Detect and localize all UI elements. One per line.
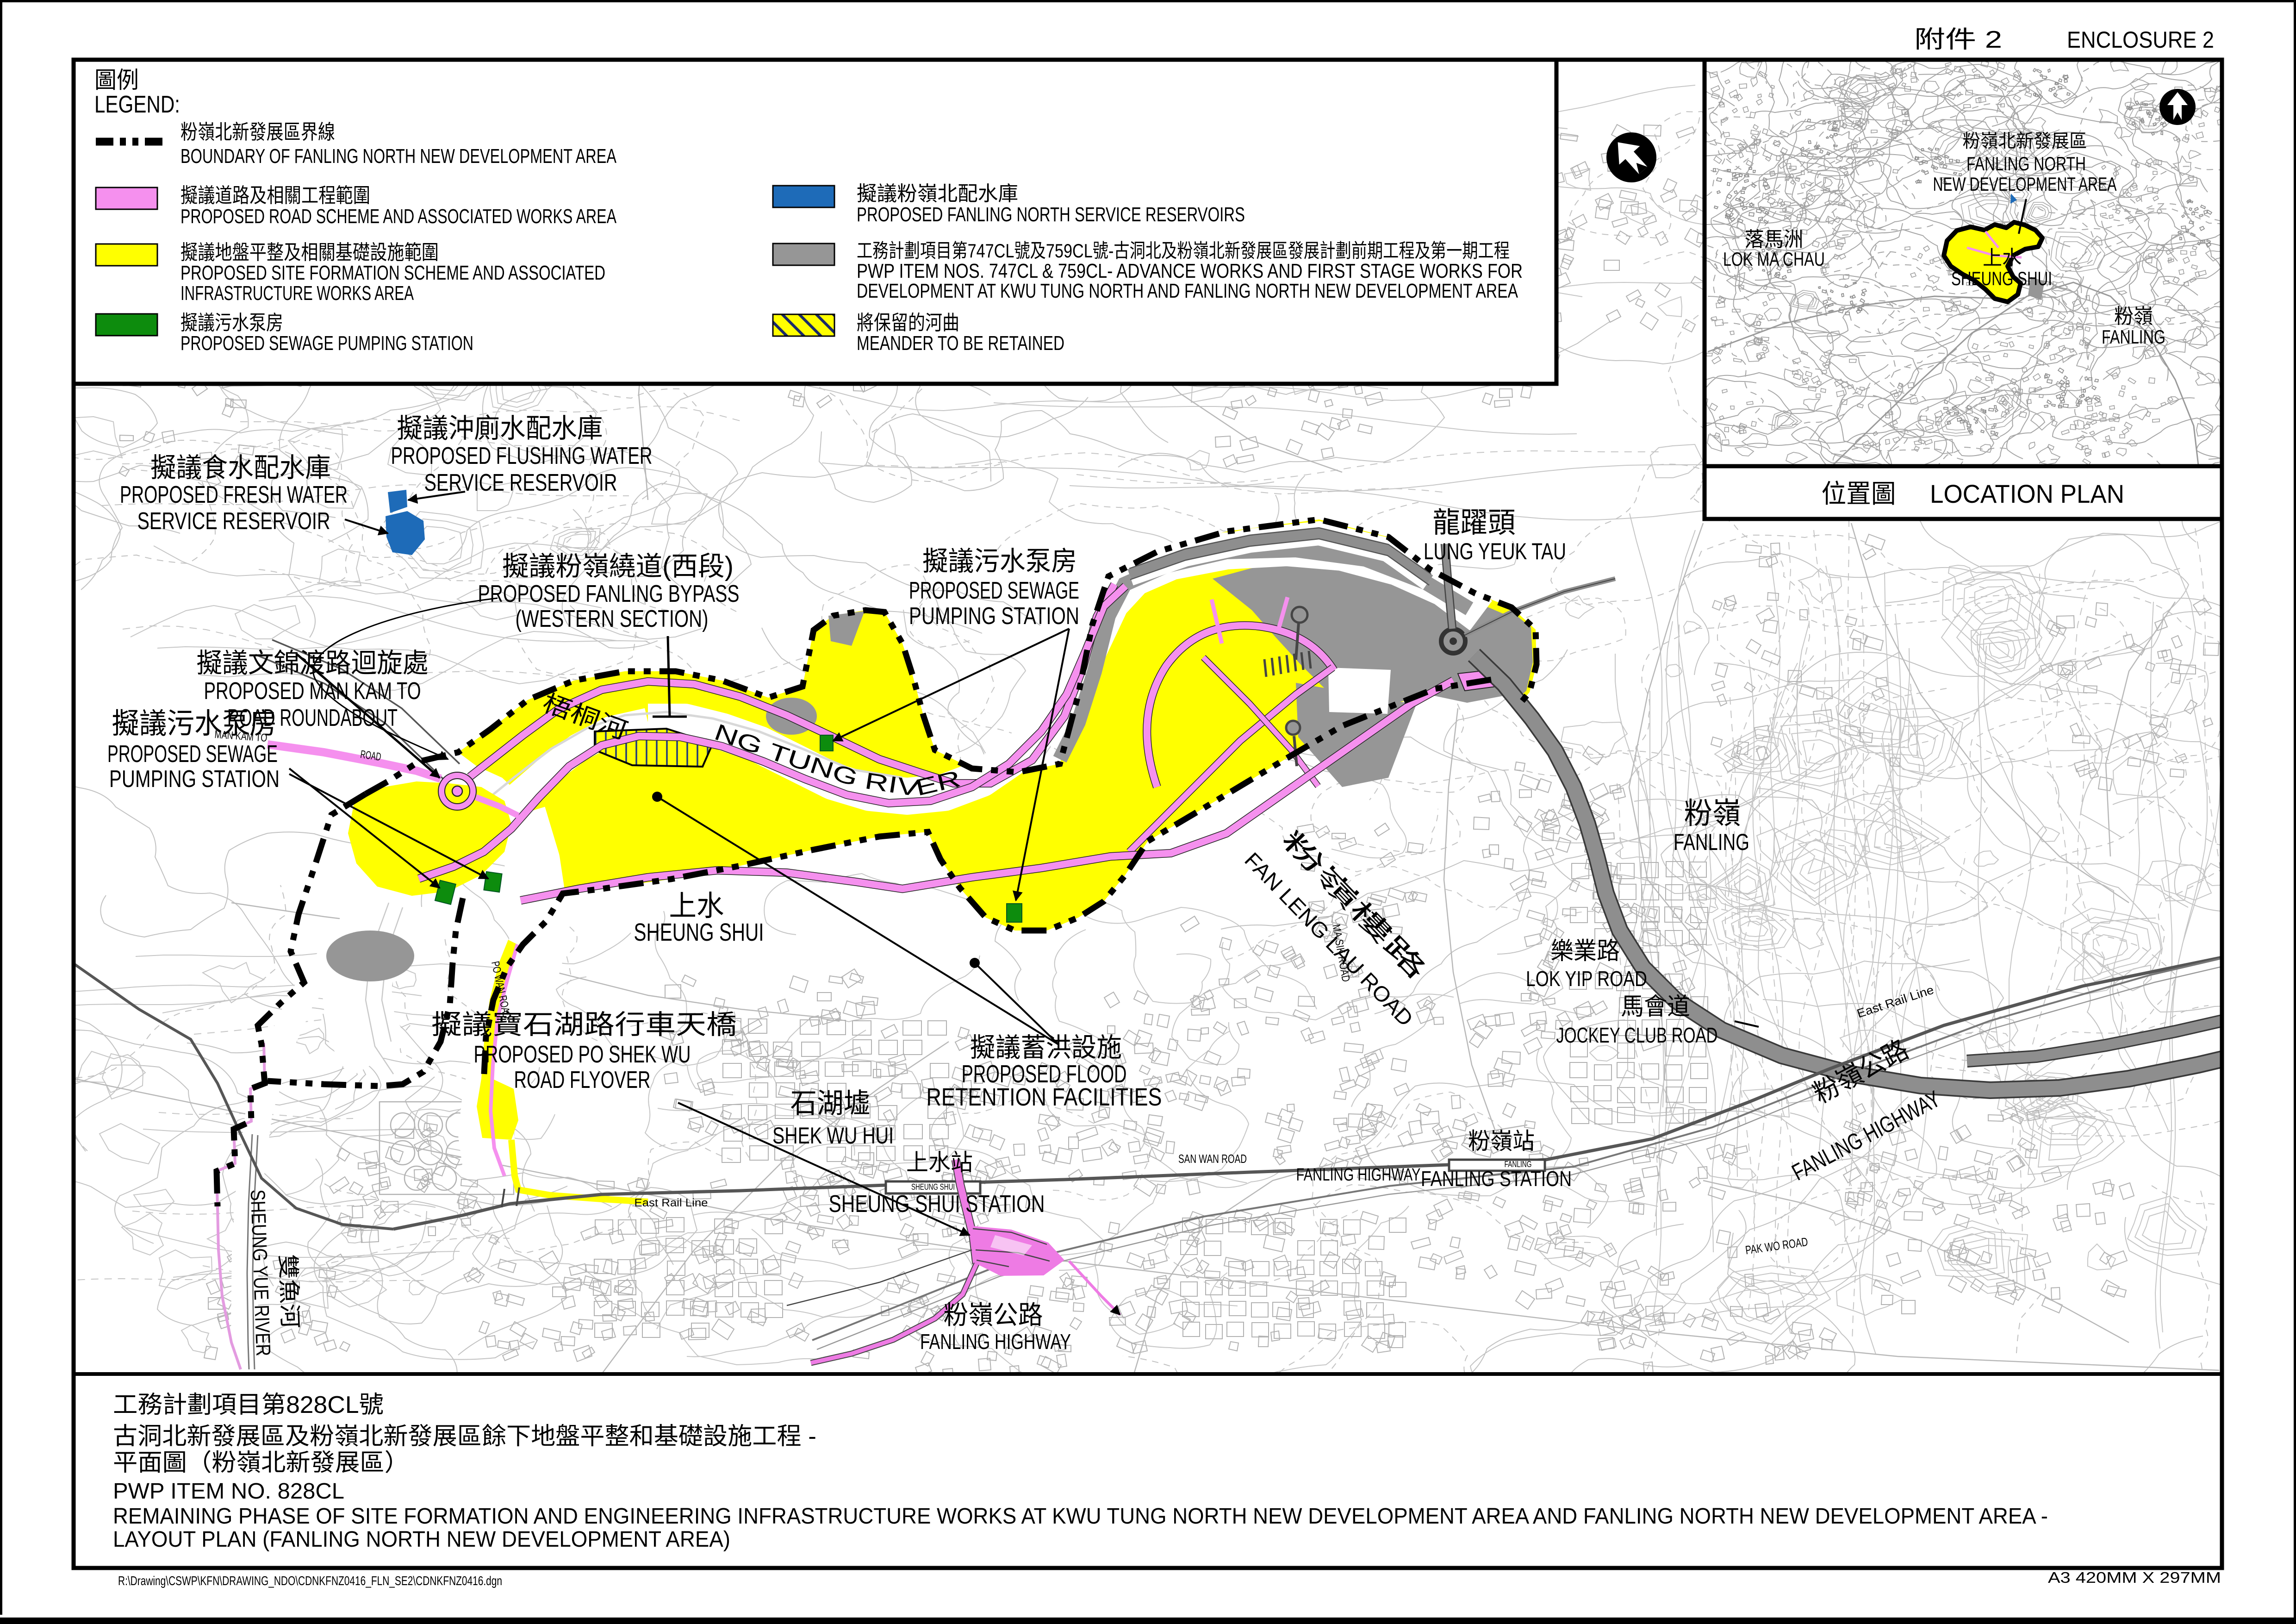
svg-text:上水: 上水 [1983, 247, 2022, 269]
svg-text:擬議粉嶺繞道(西段): 擬議粉嶺繞道(西段) [502, 551, 734, 581]
svg-text:擬議污水泵房: 擬議污水泵房 [180, 312, 283, 334]
svg-text:FANLING: FANLING [1505, 1160, 1532, 1169]
svg-text:FANLING NORTH: FANLING NORTH [1966, 153, 2086, 175]
svg-text:RETENTION FACILITIES: RETENTION FACILITIES [927, 1083, 1162, 1111]
svg-text:SHEUNG SHUI: SHEUNG SHUI [634, 918, 764, 946]
svg-text:擬議地盤平整及相關基礎設施範圍: 擬議地盤平整及相關基礎設施範圍 [180, 241, 439, 264]
svg-text:SERVICE RESERVOIR: SERVICE RESERVOIR [424, 469, 617, 496]
svg-text:將保留的河曲: 將保留的河曲 [857, 312, 959, 334]
svg-text:PUMPING STATION: PUMPING STATION [109, 766, 280, 793]
svg-text:(WESTERN SECTION): (WESTERN SECTION) [516, 606, 709, 632]
svg-text:PROPOSED MAN KAM TO: PROPOSED MAN KAM TO [204, 678, 421, 705]
svg-text:擬議沖廁水配水庫: 擬議沖廁水配水庫 [397, 413, 603, 443]
svg-text:PROPOSED FLUSHING WATER: PROPOSED FLUSHING WATER [391, 443, 653, 469]
svg-text:INFRASTRUCTURE WORKS AREA: INFRASTRUCTURE WORKS AREA [180, 282, 414, 305]
svg-text:SHEUNG SHUI: SHEUNG SHUI [911, 1182, 955, 1192]
svg-text:SHEUNG SHUI: SHEUNG SHUI [1951, 268, 2052, 289]
svg-text:PWP ITEM NOS. 747CL & 759CL- A: PWP ITEM NOS. 747CL & 759CL- ADVANCE WOR… [857, 260, 1523, 282]
svg-text:A3 420MM X 297MM: A3 420MM X 297MM [2048, 1569, 2221, 1586]
svg-text:擬議食水配水庫: 擬議食水配水庫 [150, 453, 331, 483]
svg-text:PUMPING STATION: PUMPING STATION [909, 603, 1079, 630]
svg-text:擬議粉嶺北配水庫: 擬議粉嶺北配水庫 [857, 182, 1018, 205]
svg-text:FANLING: FANLING [1674, 829, 1749, 855]
svg-text:SHEUNG SHUI STATION: SHEUNG SHUI STATION [829, 1191, 1045, 1218]
svg-text:ROAD FLYOVER: ROAD FLYOVER [514, 1067, 651, 1093]
svg-text:擬議蓄洪設施: 擬議蓄洪設施 [970, 1033, 1122, 1062]
svg-text:平面圖（粉嶺北新發展區）: 平面圖（粉嶺北新發展區） [113, 1449, 409, 1476]
svg-text:附件 2: 附件 2 [1914, 26, 2002, 53]
svg-text:擬議污水泵房: 擬議污水泵房 [922, 546, 1077, 576]
svg-text:龍躍頭: 龍躍頭 [1433, 507, 1516, 539]
svg-text:LEGEND:: LEGEND: [94, 91, 180, 118]
svg-text:R:\Drawing\CSWP\KFN\DRAWING_ND: R:\Drawing\CSWP\KFN\DRAWING_NDO\CDNKFNZ0… [118, 1574, 502, 1588]
svg-text:PROPOSED SEWAGE PUMPING STATIO: PROPOSED SEWAGE PUMPING STATION [180, 332, 473, 355]
svg-text:工務計劃項目第828CL號: 工務計劃項目第828CL號 [113, 1392, 384, 1418]
svg-text:LOK YIP ROAD: LOK YIP ROAD [1526, 967, 1647, 991]
svg-text:LOK MA CHAU: LOK MA CHAU [1723, 248, 1825, 270]
svg-text:ENCLOSURE 2: ENCLOSURE 2 [2067, 27, 2214, 53]
svg-text:PROPOSED SEWAGE: PROPOSED SEWAGE [107, 741, 278, 768]
svg-text:粉嶺北新發展區界線: 粉嶺北新發展區界線 [180, 121, 335, 144]
svg-text:上水站: 上水站 [906, 1149, 973, 1175]
svg-text:MEANDER TO BE RETAINED: MEANDER TO BE RETAINED [857, 332, 1064, 355]
svg-text:PROPOSED PO SHEK WU: PROPOSED PO SHEK WU [474, 1041, 691, 1068]
svg-text:PWP ITEM NO. 828CL: PWP ITEM NO. 828CL [113, 1479, 344, 1504]
svg-text:粉嶺公路: 粉嶺公路 [944, 1300, 1043, 1330]
svg-text:上水: 上水 [669, 890, 724, 922]
svg-text:粉嶺北新發展區: 粉嶺北新發展區 [1963, 131, 2087, 151]
svg-text:擬議文錦渡路迴旋處: 擬議文錦渡路迴旋處 [197, 648, 429, 678]
svg-text:JOCKEY CLUB ROAD: JOCKEY CLUB ROAD [1556, 1023, 1718, 1047]
svg-text:粉嶺站: 粉嶺站 [1468, 1128, 1535, 1154]
svg-text:East Rail Line: East Rail Line [635, 1197, 708, 1209]
svg-text:古洞北新發展區及粉嶺北新發展區餘下地盤平整和基礎設施工程 -: 古洞北新發展區及粉嶺北新發展區餘下地盤平整和基礎設施工程 - [113, 1423, 816, 1450]
svg-text:落馬洲: 落馬洲 [1745, 228, 1804, 251]
svg-text:LUNG YEUK TAU: LUNG YEUK TAU [1424, 538, 1566, 564]
svg-text:PROPOSED SEWAGE: PROPOSED SEWAGE [909, 577, 1079, 604]
svg-text:LOCATION PLAN: LOCATION PLAN [1930, 479, 2124, 508]
svg-text:SAN WAN ROAD: SAN WAN ROAD [1178, 1152, 1247, 1166]
svg-text:FANLING HIGHWAY: FANLING HIGHWAY [920, 1330, 1071, 1354]
svg-text:NEW DEVELOPMENT AREA: NEW DEVELOPMENT AREA [1933, 173, 2117, 195]
svg-text:擬議寶石湖路行車天橋: 擬議寶石湖路行車天橋 [431, 1010, 737, 1040]
svg-text:FANLING STATION: FANLING STATION [1421, 1167, 1572, 1191]
svg-text:PROPOSED FRESH WATER: PROPOSED FRESH WATER [120, 481, 348, 508]
svg-text:PROPOSED SITE FORMATION SCHEME: PROPOSED SITE FORMATION SCHEME AND ASSOC… [180, 262, 605, 284]
svg-text:圖例: 圖例 [94, 67, 139, 93]
svg-text:粉嶺: 粉嶺 [1684, 797, 1741, 830]
svg-text:石湖墟: 石湖墟 [790, 1088, 871, 1119]
svg-text:BOUNDARY OF FANLING NORTH NEW: BOUNDARY OF FANLING NORTH NEW DEVELOPMEN… [180, 145, 616, 168]
svg-text:PROPOSED ROAD SCHEME AND ASSOC: PROPOSED ROAD SCHEME AND ASSOCIATED WORK… [180, 205, 616, 228]
svg-text:位置圖: 位置圖 [1822, 479, 1896, 508]
svg-text:粉嶺: 粉嶺 [2114, 305, 2153, 328]
svg-text:SHEK WU HUI: SHEK WU HUI [772, 1123, 894, 1149]
svg-text:樂業路: 樂業路 [1550, 938, 1620, 965]
svg-text:FANLING: FANLING [2102, 326, 2165, 348]
svg-text:馬會道: 馬會道 [1621, 993, 1690, 1020]
svg-text:PROPOSED FANLING BYPASS: PROPOSED FANLING BYPASS [478, 581, 740, 607]
svg-text:DEVELOPMENT AT KWU TUNG NORTH: DEVELOPMENT AT KWU TUNG NORTH AND FANLIN… [857, 280, 1518, 302]
svg-text:擬議道路及相關工程範圍: 擬議道路及相關工程範圍 [180, 184, 370, 207]
svg-text:SERVICE RESERVOIR: SERVICE RESERVOIR [137, 508, 330, 535]
svg-text:LAYOUT PLAN (FANLING NORTH NEW: LAYOUT PLAN (FANLING NORTH NEW DEVELOPME… [113, 1527, 730, 1552]
svg-text:PROPOSED FANLING NORTH SERVICE: PROPOSED FANLING NORTH SERVICE RESERVOIR… [857, 203, 1245, 226]
svg-text:雙魚河: 雙魚河 [275, 1254, 302, 1329]
svg-text:REMAINING PHASE OF SITE FORMAT: REMAINING PHASE OF SITE FORMATION AND EN… [113, 1504, 2048, 1529]
svg-text:工務計劃項目第747CL號及759CL號-古洞北及粉嶺北新發: 工務計劃項目第747CL號及759CL號-古洞北及粉嶺北新發展區發展計劃前期工程… [857, 240, 1510, 262]
svg-text:FANLING HIGHWAY: FANLING HIGHWAY [1296, 1165, 1421, 1185]
